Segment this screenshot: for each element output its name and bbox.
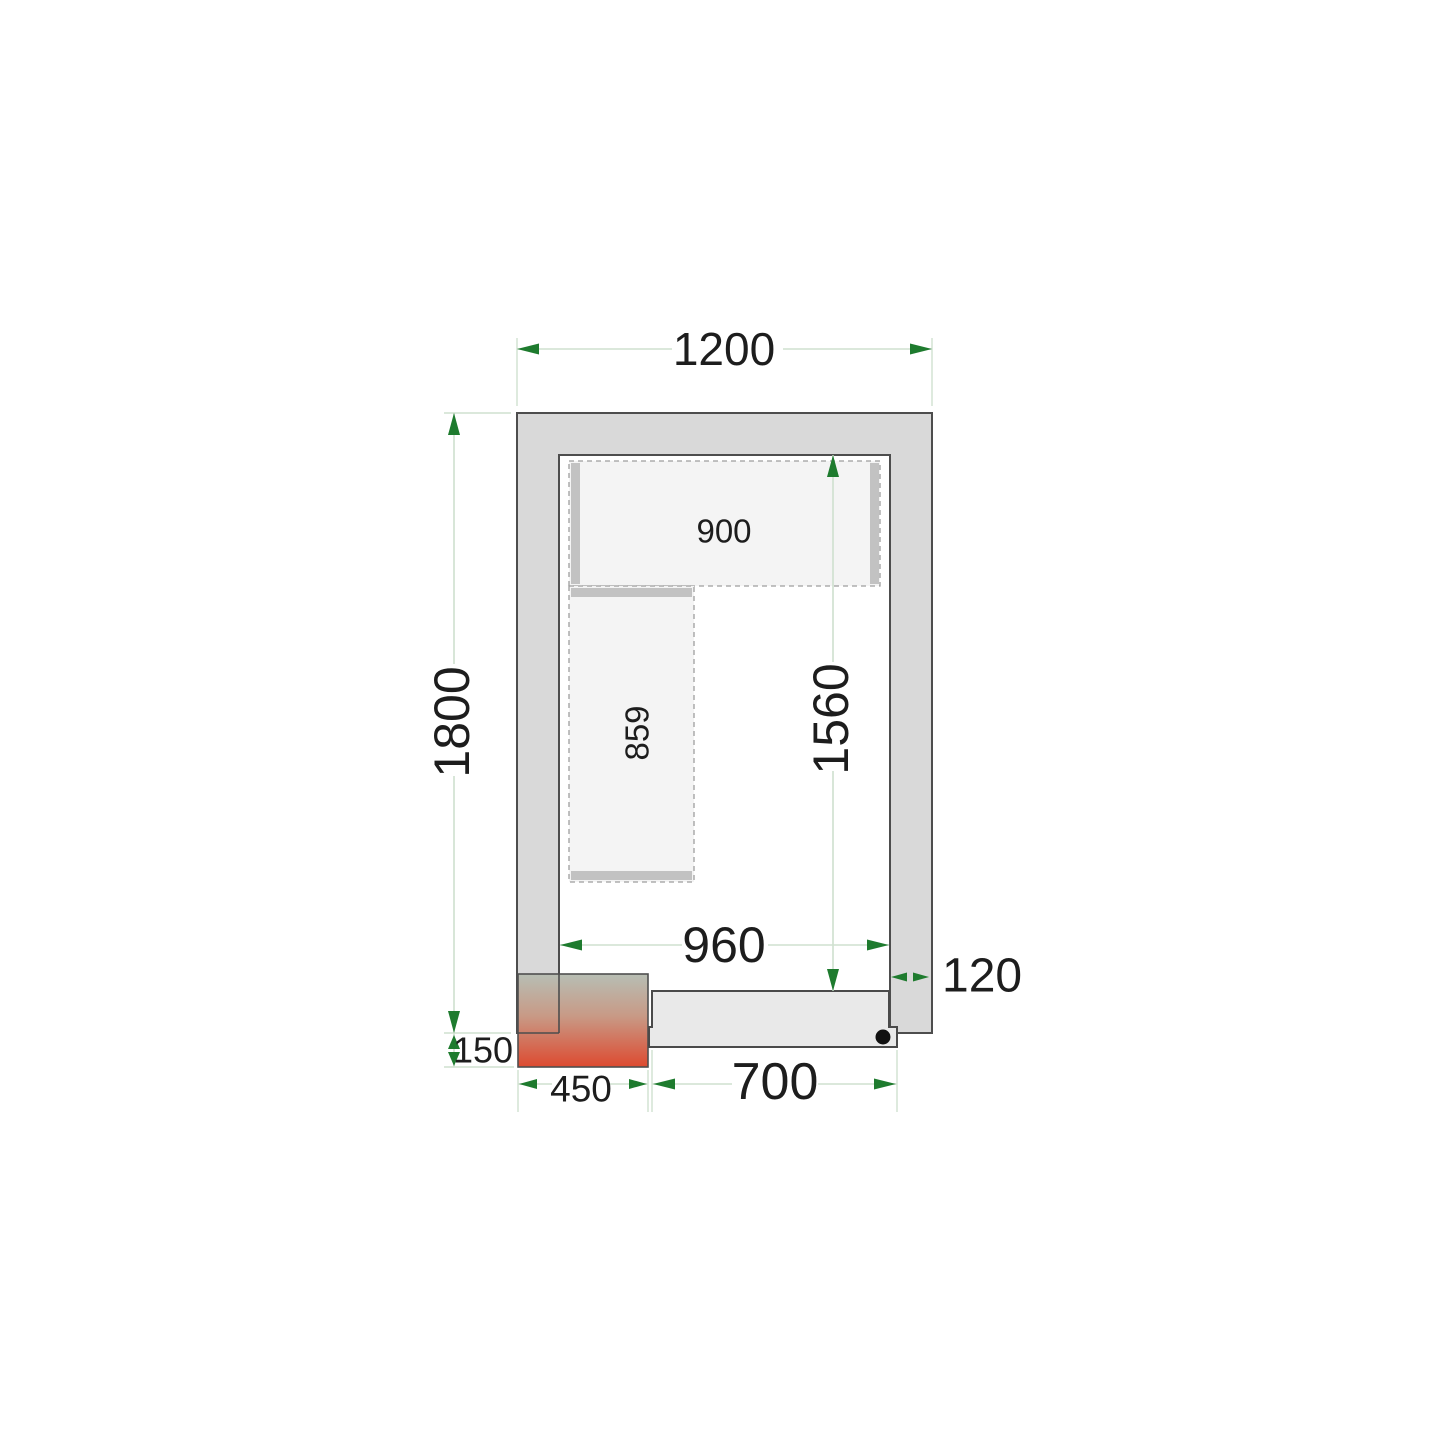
dimension-label: 150 [453, 1030, 513, 1071]
dimension-label: 120 [942, 950, 1022, 1003]
dimension-label: 1800 [424, 666, 480, 777]
cooling-unit-block [518, 974, 648, 1067]
door [649, 991, 897, 1047]
shelf-top-support-left [571, 463, 580, 584]
cooling-unit-rect [518, 974, 648, 1067]
floor-plan-drawing: 900 859 1200 1800 1560 [0, 0, 1445, 1445]
shelf-top-support-right [870, 463, 879, 584]
dimension-unit-overhang: 150 [444, 1030, 514, 1071]
shelf-top-label: 900 [696, 513, 751, 550]
dimension-label: 1200 [673, 323, 775, 375]
dimension-label: 700 [732, 1053, 819, 1111]
diagram-canvas: 900 859 1200 1800 1560 [0, 0, 1445, 1445]
shelf-left-support-top [571, 588, 692, 597]
shelf-left-support-bottom [571, 871, 692, 880]
door-leaf [649, 991, 897, 1047]
door-hinge-dot [876, 1030, 891, 1045]
shelf-left: 859 [569, 586, 694, 882]
canvas-background [0, 0, 1445, 1445]
dimension-label: 450 [550, 1069, 612, 1110]
dimension-label: 1560 [803, 663, 859, 774]
dimension-label: 960 [682, 917, 765, 973]
shelf-left-label: 859 [619, 705, 656, 760]
